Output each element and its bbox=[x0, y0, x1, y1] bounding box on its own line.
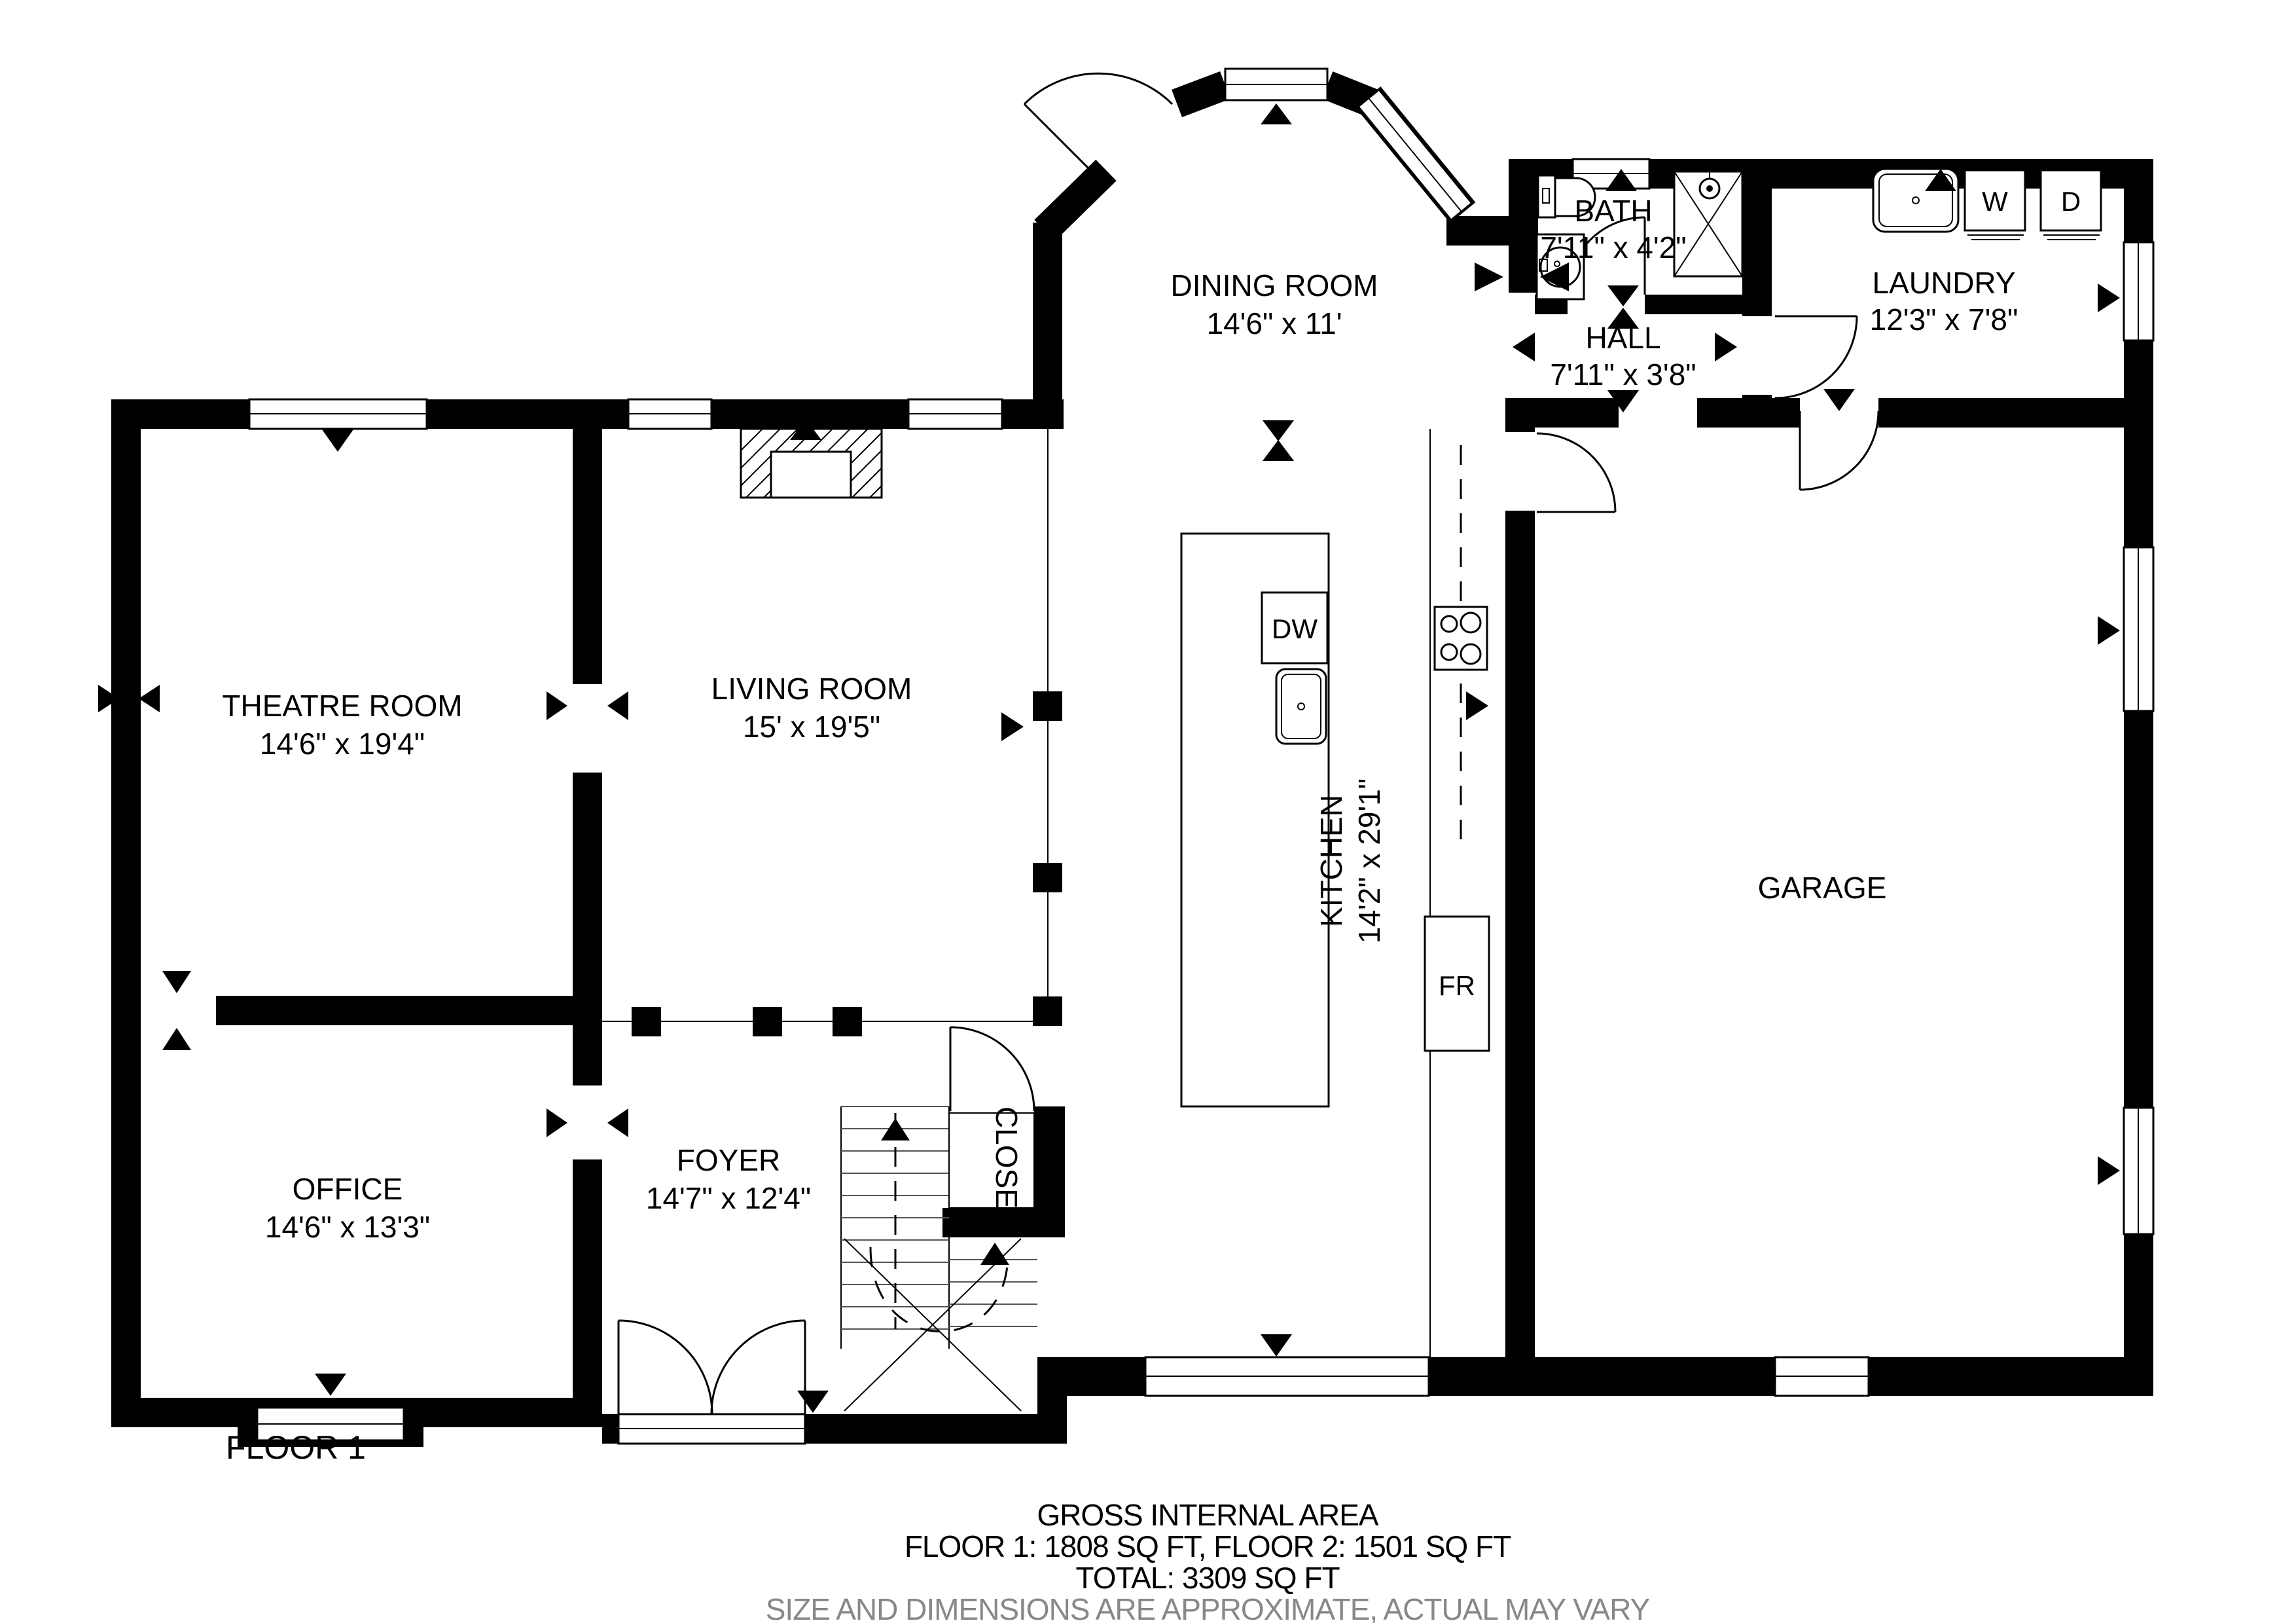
dining-room-dims: 14'6" x 11' bbox=[1207, 306, 1342, 340]
living-room-dims: 15' x 19'5" bbox=[743, 710, 880, 744]
kitchen-window bbox=[1145, 1357, 1429, 1396]
garage-window-lower bbox=[2124, 1108, 2153, 1234]
kitchen-label: KITCHEN bbox=[1314, 795, 1348, 927]
theatre-window bbox=[249, 399, 427, 429]
theatre-room-dims: 14'6" x 19'4" bbox=[260, 727, 425, 761]
garage-bottom-window bbox=[1775, 1357, 1869, 1396]
footer-disclaimer: SIZE AND DIMENSIONS ARE APPROXIMATE, ACT… bbox=[766, 1592, 1650, 1623]
laundry-window bbox=[2124, 242, 2153, 340]
hall-dims: 7'11" x 3'8" bbox=[1550, 357, 1696, 392]
footer-title: GROSS INTERNAL AREA bbox=[1037, 1498, 1379, 1532]
laundry-fixtures: W D bbox=[1873, 169, 2101, 240]
bath-label: BATH bbox=[1574, 194, 1652, 228]
cooktop bbox=[1435, 607, 1487, 670]
bay-wall-left-corner bbox=[1177, 85, 1225, 103]
fridge-label: FR bbox=[1439, 970, 1475, 1001]
closet-label: CLOSET bbox=[990, 1106, 1024, 1227]
living-window-right bbox=[908, 399, 1002, 429]
island-sink bbox=[1276, 669, 1326, 744]
living-room-label: LIVING ROOM bbox=[711, 672, 912, 706]
foyer-dims: 14'7" x 12'4" bbox=[646, 1181, 811, 1215]
floorplan-svg: DW FR bbox=[0, 0, 2296, 1623]
washer: W bbox=[1965, 170, 2025, 240]
bay-center-window bbox=[1225, 69, 1327, 100]
footer-areas: FLOOR 1: 1808 SQ FT, FLOOR 2: 1501 SQ FT bbox=[905, 1529, 1511, 1563]
dryer: D bbox=[2041, 170, 2101, 240]
laundry-dims: 12'3" x 7'8" bbox=[1870, 302, 2018, 337]
fridge: FR bbox=[1425, 917, 1489, 1051]
hall-label: HALL bbox=[1585, 321, 1660, 355]
washer-label: W bbox=[1982, 186, 2008, 217]
floor-label: FLOOR 1 bbox=[226, 1429, 366, 1466]
kitchen-island: DW bbox=[1181, 534, 1329, 1106]
floorplan-page: DW FR bbox=[0, 0, 2296, 1623]
kitchen-dims: 14'2" x 29'1" bbox=[1352, 778, 1386, 943]
dryer-label: D bbox=[2061, 186, 2081, 217]
living-window-left bbox=[628, 399, 711, 429]
laundry-label: LAUNDRY bbox=[1873, 266, 2016, 300]
dishwasher-label: DW bbox=[1272, 613, 1318, 644]
office-label: OFFICE bbox=[293, 1172, 403, 1206]
office-dims: 14'6" x 13'3" bbox=[265, 1210, 430, 1244]
theatre-room-label: THEATRE ROOM bbox=[222, 689, 462, 723]
foyer-label: FOYER bbox=[677, 1143, 780, 1177]
footer-total: TOTAL: 3309 SQ FT bbox=[1075, 1561, 1340, 1595]
entry-threshold bbox=[619, 1414, 805, 1444]
fireplace-insert bbox=[771, 452, 851, 498]
garage-window-upper bbox=[2124, 547, 2153, 711]
bath-dims: 7'11" x 4'2" bbox=[1540, 230, 1686, 264]
garage-label: GARAGE bbox=[1758, 871, 1887, 905]
dining-room-label: DINING ROOM bbox=[1171, 268, 1378, 302]
